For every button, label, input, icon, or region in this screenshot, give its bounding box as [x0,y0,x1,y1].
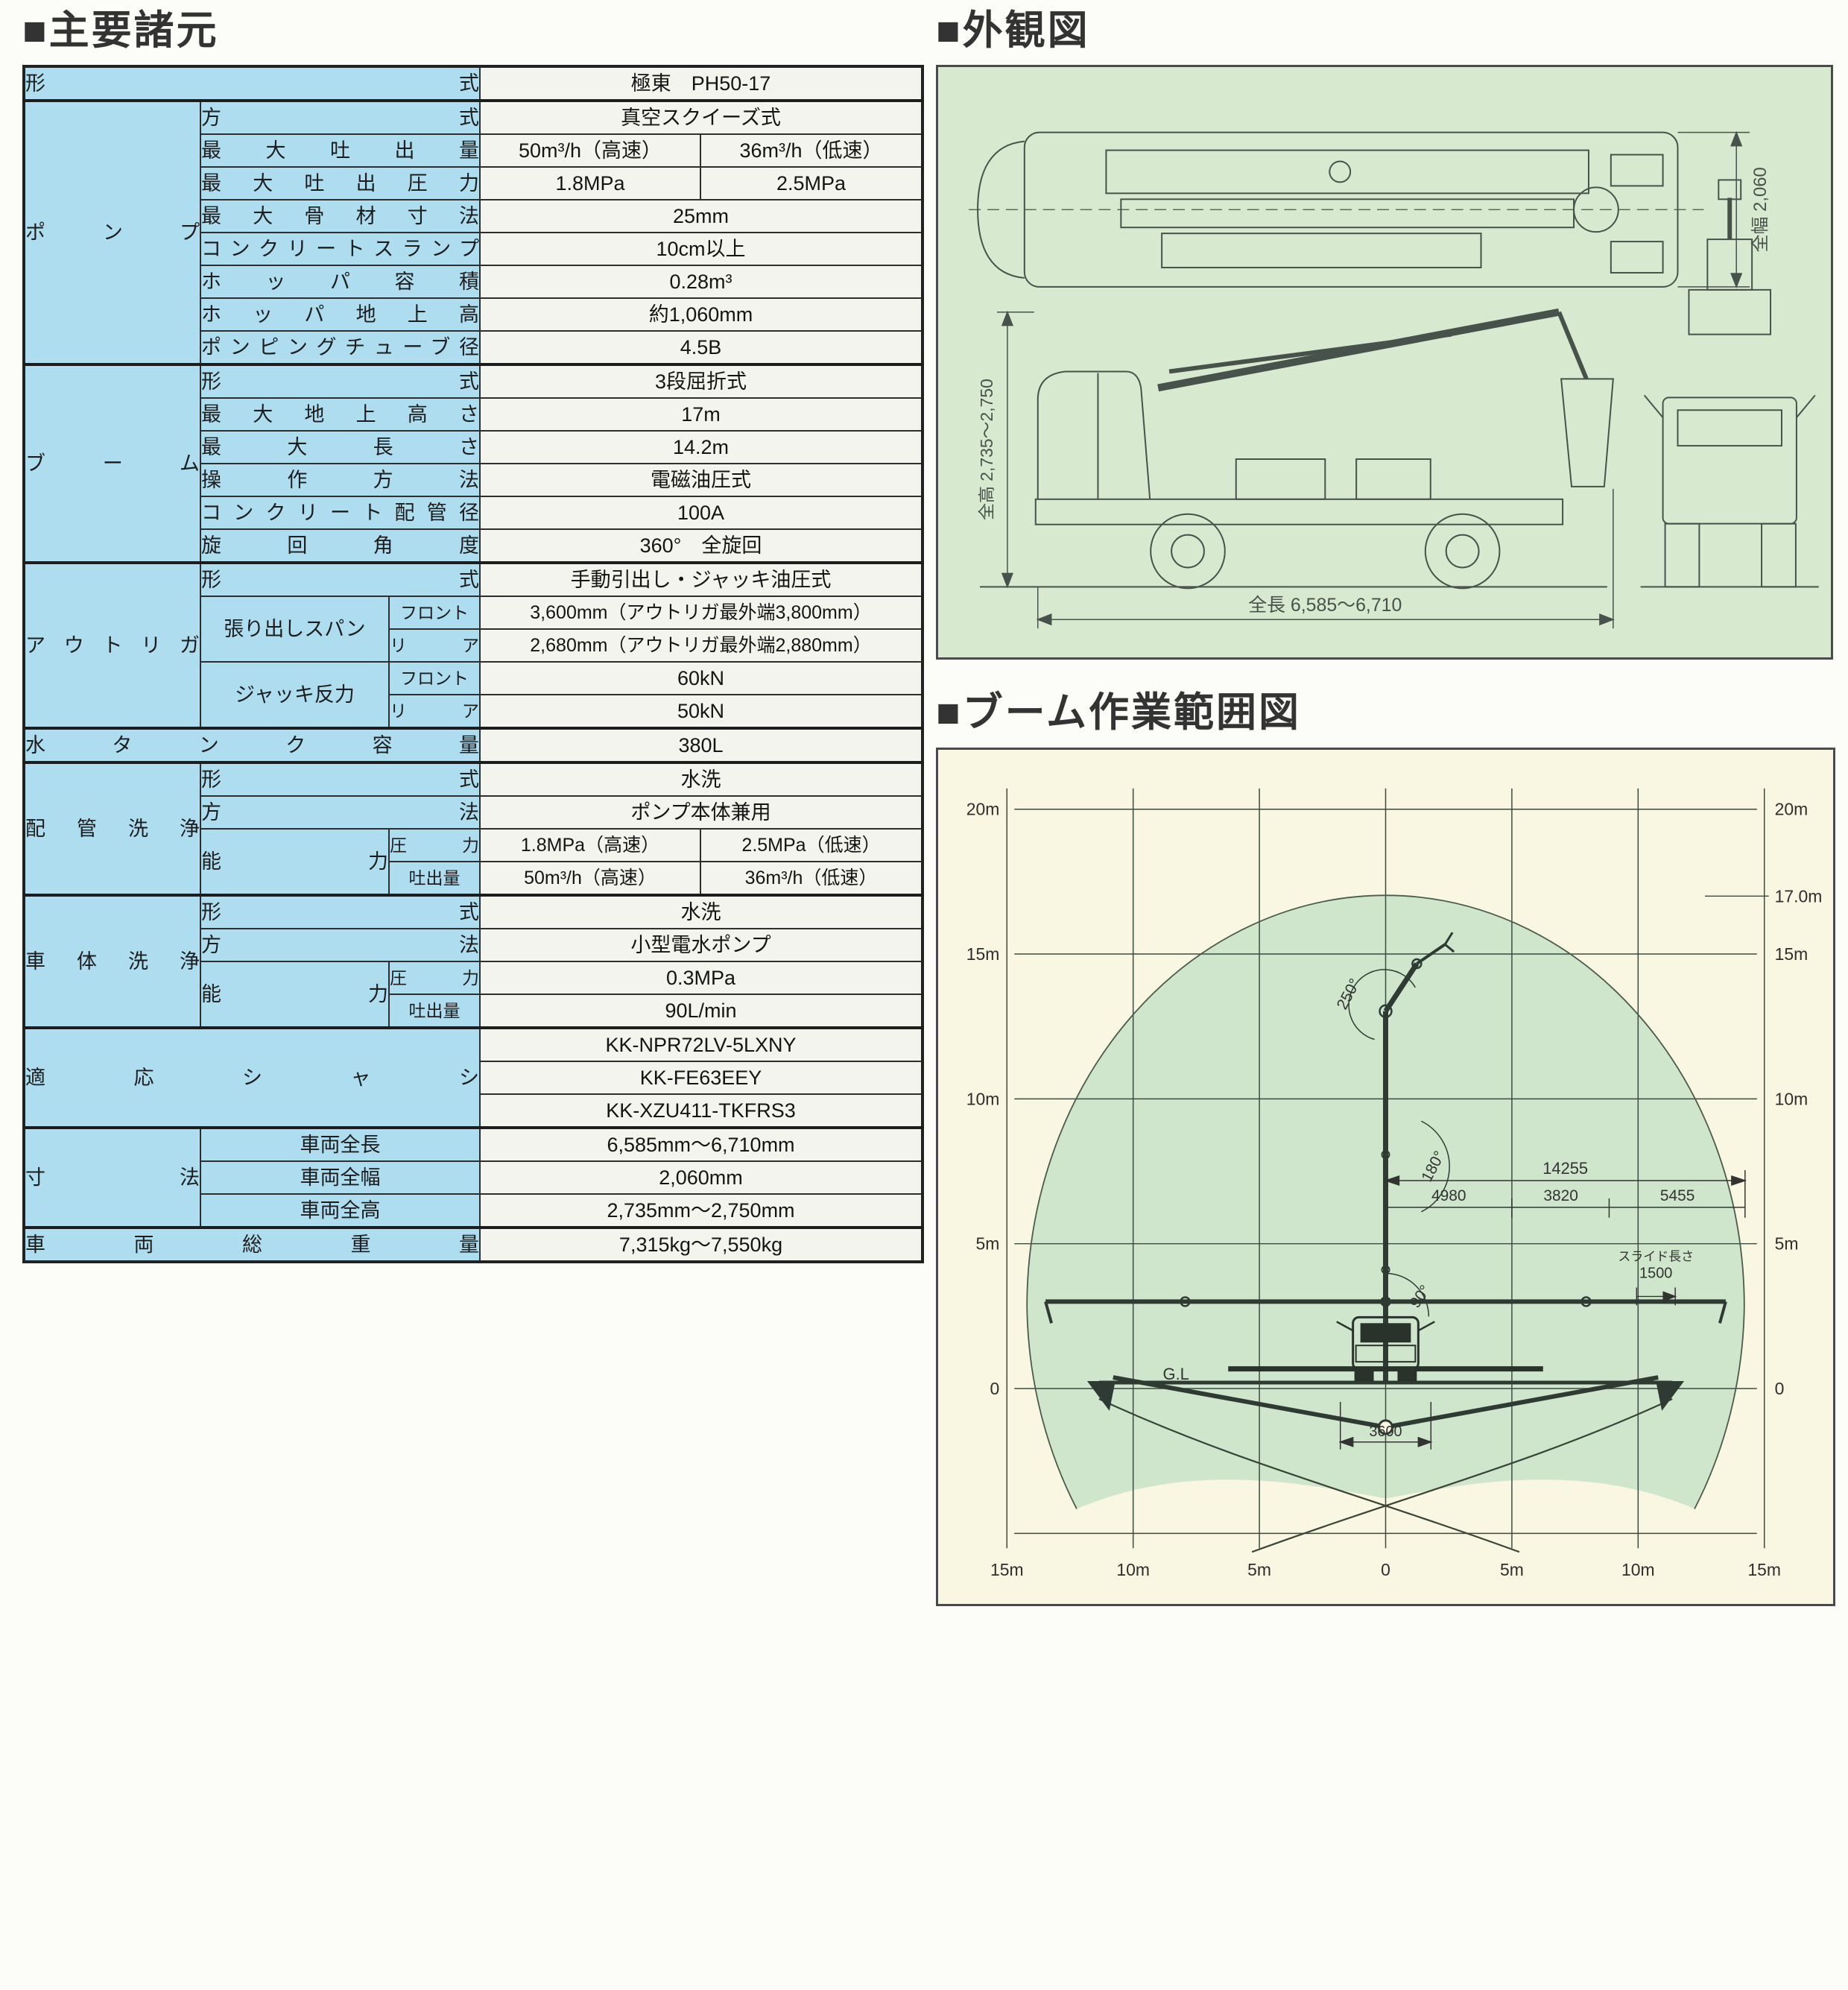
dim-slide-label: スライド長さ [1618,1249,1694,1263]
spec-cell: ジャッキ反力 [200,662,389,728]
spec-cell: 3,600mm（アウトリガ最外端3,800mm） [480,596,923,629]
spec-cell: 36m³/h（低速） [700,134,923,167]
spec-cell: リア [389,695,480,728]
range-panel: 14255 4980 3820 5455 スライド長さ 1500 3600 [936,748,1835,1606]
spec-cell: 90L/min [480,994,923,1028]
spec-cell: KK-FE63EEY [480,1061,923,1094]
dim-seg1: 4980 [1431,1187,1466,1204]
length-dimension-label: 全長 6,585～6,710 [1248,596,1402,616]
truck-side-view [980,312,1613,589]
range-heading: ■ブーム作業範囲図 [936,691,1838,735]
spec-cell: 形式 [200,762,480,796]
spec-cell: 形式 [24,66,480,101]
dim-seg2: 3820 [1543,1187,1578,1204]
spec-cell: 車両全長 [200,1128,480,1161]
spec-cell: フロント [389,662,480,695]
x-0: 0 [1381,1560,1390,1579]
spec-cell: 真空スクイーズ式 [480,101,923,134]
spec-cell: 方式 [200,101,480,134]
spec-cell: 36m³/h（低速） [700,862,923,895]
y-right-10: 10m [1775,1089,1809,1108]
spec-cell: 水洗 [480,762,923,796]
y-left-5: 5m [975,1234,999,1253]
dim-slide-value: 1500 [1639,1265,1672,1281]
spec-cell: フロント [389,596,480,629]
exterior-panel: 全幅 2,060 全高 2,735～2 [936,65,1833,660]
spec-cell: アウトリガ [24,563,200,728]
dim-outrigger-front: 3600 [1369,1424,1402,1440]
y-left-0: 0 [990,1379,1000,1398]
spec-cell: ホッパ地上高 [200,298,480,331]
spec-cell: KK-XZU411-TKFRS3 [480,1094,923,1128]
spec-cell: 張り出しスパン [200,596,389,662]
ground-line-label: G.L [1163,1365,1189,1383]
spec-cell: 2.5MPa [700,167,923,200]
truck-rear-view [1641,180,1819,587]
spec-cell: 旋回角度 [200,529,480,563]
spec-cell: 2,735mm～2,750mm [480,1194,923,1228]
spec-cell: ポンプ本体兼用 [480,796,923,829]
spec-cell: 2,680mm（アウトリガ最外端2,880mm） [480,629,923,662]
range-diagram: 14255 4980 3820 5455 スライド長さ 1500 3600 [938,750,1833,1604]
spec-cell: 吐出量 [389,862,480,895]
spec-cell: 14.2m [480,431,923,464]
spec-cell: リア [389,629,480,662]
spec-cell: 手動引出し・ジャッキ油圧式 [480,563,923,596]
spec-cell: 極東 PH50-17 [480,66,923,101]
spec-cell: 約1,060mm [480,298,923,331]
spec-cell: 50m³/h（高速） [480,134,700,167]
exterior-heading: ■外観図 [936,9,1838,53]
x-m10: 10m [1116,1560,1150,1579]
spec-cell: 360° 全旋回 [480,529,923,563]
spec-cell: 形式 [200,563,480,596]
spec-cell: 能力 [200,829,389,895]
y-left-10: 10m [966,1089,1000,1108]
spec-cell: 方法 [200,929,480,961]
y-right-0: 0 [1775,1379,1785,1398]
height-dimension: 全高 2,735～2,750 [977,312,1034,587]
spec-cell: 最大長さ [200,431,480,464]
y-right-20: 20m [1775,799,1809,818]
height-dimension-label: 全高 2,735～2,750 [977,379,996,521]
spec-cell: コンクリート配管径 [200,496,480,529]
x-m15: 15m [990,1560,1024,1579]
spec-cell: 1.8MPa [480,167,700,200]
spec-cell: 380L [480,728,923,762]
spec-cell: 車体洗浄 [24,895,200,1028]
spec-cell: 60kN [480,662,923,695]
spec-cell: 100A [480,496,923,529]
truck-top-view [969,133,1703,287]
spec-cell: ポンピングチューブ径 [200,331,480,364]
spec-cell: 水洗 [480,895,923,929]
spec-cell: 最大吐出圧力 [200,167,480,200]
spec-cell: 50m³/h（高速） [480,862,700,895]
specs-section: ■主要諸元 形式極東 PH50-17ポンプ方式真空スクイーズ式最大吐出量50m³… [22,9,921,1263]
width-dimension: 全幅 2,060 [1678,133,1771,287]
drawings-section: ■外観図 全幅 2,060 [936,9,1838,1606]
spec-cell: 配管洗浄 [24,762,200,895]
spec-cell: 圧力 [389,829,480,862]
y-right-5: 5m [1775,1234,1799,1253]
spec-cell: 圧力 [389,961,480,994]
y-right-15: 15m [1775,944,1809,964]
spec-cell: 車両総重量 [24,1228,480,1262]
spec-cell: 電磁油圧式 [480,464,923,496]
spec-cell: 吐出量 [389,994,480,1028]
spec-cell: 7,315kg～7,550kg [480,1228,923,1262]
spec-cell: ポンプ [24,101,200,364]
dim-seg3: 5455 [1660,1187,1695,1204]
spec-cell: コンクリートスランプ [200,233,480,265]
spec-cell: KK-NPR72LV-5LXNY [480,1028,923,1061]
spec-cell: 車両全幅 [200,1161,480,1194]
spec-cell: ブーム [24,364,200,563]
spec-cell: ホッパ容積 [200,265,480,298]
spec-cell: 3段屈折式 [480,364,923,398]
spec-cell: 2.5MPa（低速） [700,829,923,862]
spec-cell: 4.5B [480,331,923,364]
spec-cell: 最大骨材寸法 [200,200,480,233]
spec-cell: 10cm以上 [480,233,923,265]
spec-cell: 25mm [480,200,923,233]
spec-cell: 適応シャシ [24,1028,480,1128]
width-dimension-label: 全幅 2,060 [1750,168,1771,253]
spec-cell: 操作方法 [200,464,480,496]
spec-cell: 小型電水ポンプ [480,929,923,961]
spec-cell: 方法 [200,796,480,829]
y-left-15: 15m [966,944,1000,964]
exterior-drawing: 全幅 2,060 全高 2,735～2 [938,67,1831,657]
spec-cell: 寸法 [24,1128,200,1228]
spec-cell: 形式 [200,364,480,398]
spec-cell: 50kN [480,695,923,728]
x-p10: 10m [1621,1560,1655,1579]
x-m5: 5m [1247,1560,1271,1579]
y-left-20: 20m [966,799,1000,818]
y-right-17: 17.0m [1775,886,1823,906]
spec-cell: 2,060mm [480,1161,923,1194]
spec-table: 形式極東 PH50-17ポンプ方式真空スクイーズ式最大吐出量50m³/h（高速）… [22,65,924,1263]
spec-cell: 車両全高 [200,1194,480,1228]
length-dimension: 全長 6,585～6,710 [1038,489,1613,628]
spec-cell: 水タンク容量 [24,728,480,762]
spec-cell: 形式 [200,895,480,929]
specs-heading: ■主要諸元 [22,9,921,53]
spec-cell: 0.3MPa [480,961,923,994]
dim-total: 14255 [1542,1159,1588,1178]
spec-cell: 最大地上高さ [200,398,480,431]
spec-cell: 最大吐出量 [200,134,480,167]
spec-cell: 0.28m³ [480,265,923,298]
spec-cell: 1.8MPa（高速） [480,829,700,862]
x-p15: 15m [1747,1560,1781,1579]
spec-cell: 6,585mm～6,710mm [480,1128,923,1161]
spec-cell: 17m [480,398,923,431]
spec-table-body: 形式極東 PH50-17ポンプ方式真空スクイーズ式最大吐出量50m³/h（高速）… [24,66,923,1262]
spec-cell: 能力 [200,961,389,1028]
x-p5: 5m [1500,1560,1524,1579]
